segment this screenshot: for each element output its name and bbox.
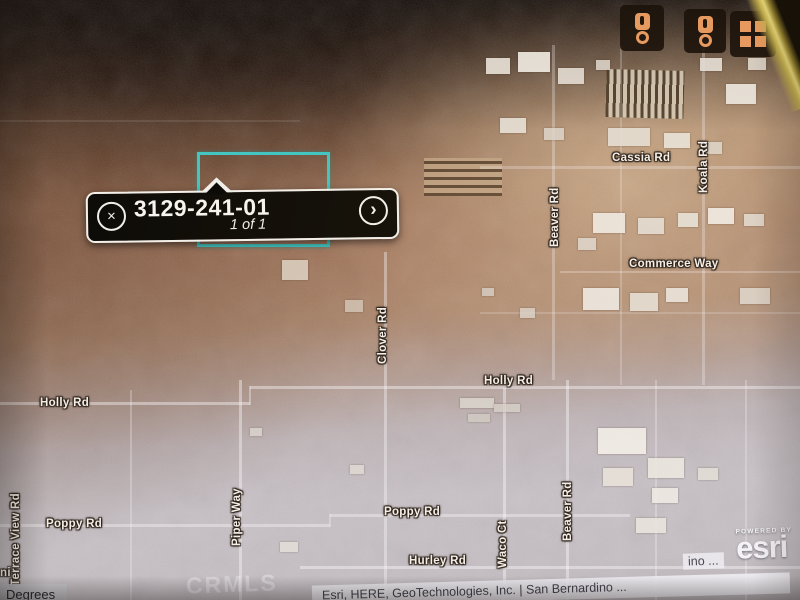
map-marker-tool-button-1[interactable] [620, 5, 664, 51]
road-label: Hurley Rd [409, 555, 466, 567]
map-pin-ring-icon [699, 34, 712, 47]
road-label: ni [0, 567, 11, 579]
road-label: Commerce Way [629, 258, 718, 270]
coordinate-units-label: Degrees [0, 584, 67, 600]
popup-page-indicator: 1 of 1 [148, 216, 348, 235]
road-label: Koala Rd [698, 141, 710, 193]
road-label: Poppy Rd [46, 518, 102, 530]
map-marker-tool-button-2[interactable] [684, 9, 726, 53]
map-pin-ring-icon [636, 31, 649, 44]
chevron-right-icon: › [370, 200, 377, 219]
attribution-overflow: ino ... [683, 552, 724, 569]
road-label: Terrace View Rd [10, 493, 22, 586]
road-label: Beaver Rd [562, 481, 574, 541]
road-label: Cassia Rd [612, 152, 670, 164]
map-pin-icon [698, 16, 713, 33]
road-label: Clover Rd [377, 307, 389, 364]
esri-brand-text: esri [736, 532, 800, 562]
next-result-button[interactable]: › [359, 196, 388, 225]
road-labels-layer: Cassia RdKoala RdBeaver RdCommerce WayCl… [0, 0, 800, 600]
parcel-popup: × 3129-241-01 1 of 1 › [86, 188, 400, 243]
close-icon: × [107, 209, 116, 224]
grid-icon [740, 21, 766, 47]
popup-pointer-fill [205, 182, 229, 194]
crmls-watermark: CRMLS [186, 569, 279, 599]
road-label: Piper Way [231, 488, 243, 546]
road-label: Holly Rd [40, 397, 89, 409]
map-pin-icon [635, 13, 650, 30]
map-screenshot: Cassia RdKoala RdBeaver RdCommerce WayCl… [0, 0, 800, 600]
basemap-grid-button[interactable] [730, 11, 776, 57]
road-label: Beaver Rd [549, 187, 561, 247]
road-label: Holly Rd [484, 375, 533, 387]
road-label: Waco Ct [497, 520, 509, 568]
close-popup-button[interactable]: × [97, 202, 126, 231]
esri-logo: POWERED BY esri [735, 525, 800, 562]
road-label: Poppy Rd [384, 506, 440, 518]
